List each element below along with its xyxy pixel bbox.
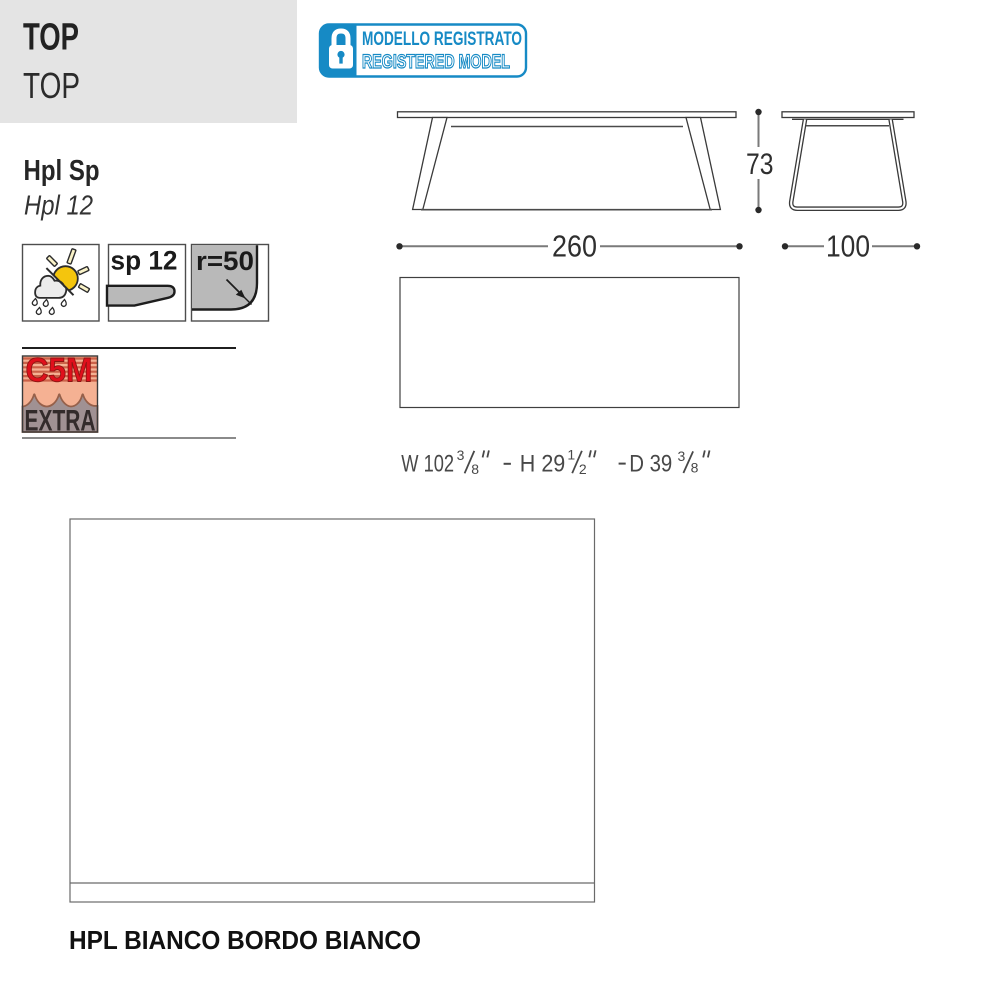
- svg-text:2: 2: [579, 461, 587, 477]
- svg-text:REGISTERED MODEL: REGISTERED MODEL: [362, 52, 510, 73]
- svg-text:TOP: TOP: [23, 17, 79, 59]
- svg-text:D 39: D 39: [629, 450, 672, 477]
- svg-text:73: 73: [746, 148, 774, 181]
- svg-text:HPL BIANCO BORDO BIANCO: HPL BIANCO BORDO BIANCO: [69, 927, 421, 955]
- svg-text:MODELLO REGISTRATO: MODELLO REGISTRATO: [362, 29, 522, 50]
- svg-text:H 29: H 29: [520, 450, 566, 477]
- svg-text:100: 100: [826, 229, 870, 264]
- svg-text:C5M: C5M: [26, 352, 93, 390]
- svg-text:1: 1: [567, 447, 575, 463]
- svg-text:r=50: r=50: [196, 246, 254, 276]
- svg-text:W 102: W 102: [401, 450, 454, 477]
- svg-text:3: 3: [678, 448, 686, 464]
- svg-text:3: 3: [457, 447, 465, 463]
- svg-text:Hpl 12: Hpl 12: [24, 190, 93, 221]
- svg-text:sp 12: sp 12: [111, 246, 178, 276]
- svg-text:8: 8: [471, 461, 479, 477]
- svg-text:8: 8: [691, 460, 699, 476]
- svg-text:Hpl Sp: Hpl Sp: [24, 155, 100, 187]
- svg-text:TOP: TOP: [23, 65, 80, 106]
- svg-text:260: 260: [552, 229, 597, 264]
